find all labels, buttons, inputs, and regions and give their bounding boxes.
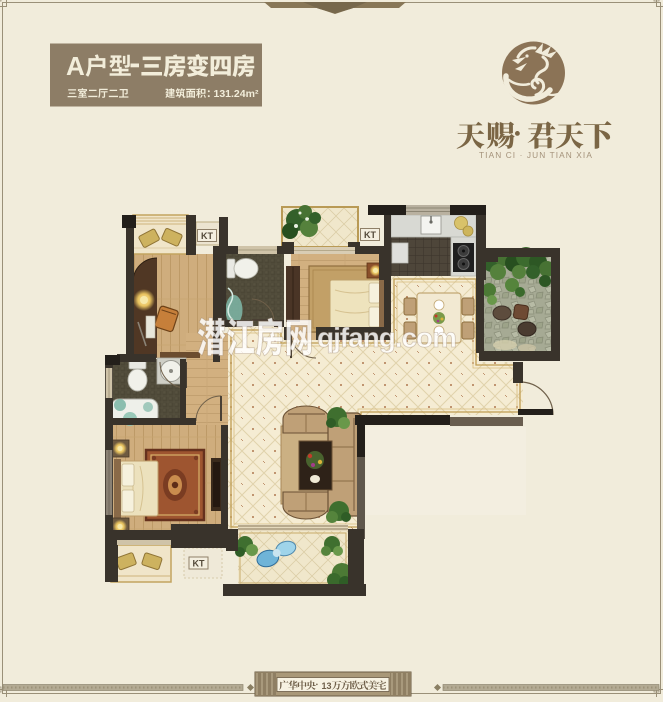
svg-text:TIAN CI · JUN TIAN XIA: TIAN CI · JUN TIAN XIA xyxy=(479,150,593,160)
svg-text:A: A xyxy=(66,51,85,81)
svg-text:KT: KT xyxy=(201,231,213,241)
svg-text:KT: KT xyxy=(364,230,376,240)
svg-text:KT: KT xyxy=(193,559,205,569)
svg-text:13: 13 xyxy=(322,681,332,691)
svg-text:qjfang.com: qjfang.com xyxy=(317,322,457,353)
svg-text:131.24m²: 131.24m² xyxy=(214,88,259,100)
